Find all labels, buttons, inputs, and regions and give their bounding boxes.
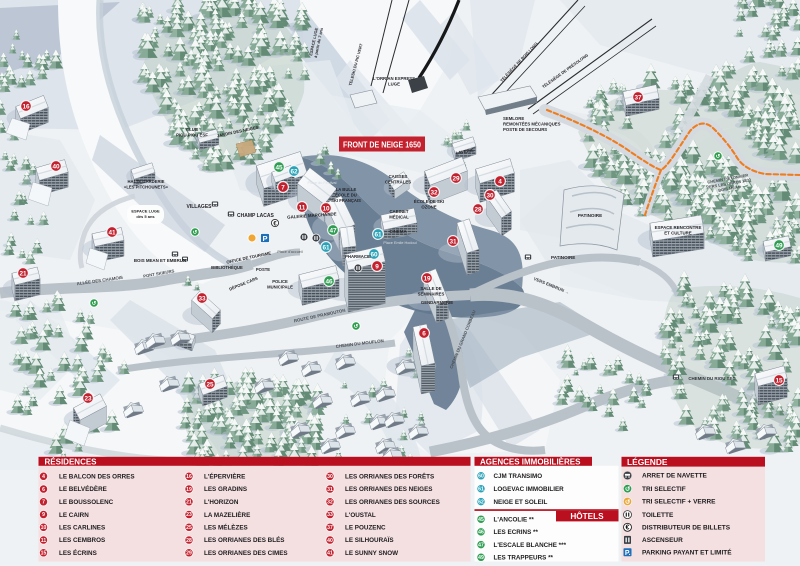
svg-text:31: 31 bbox=[327, 487, 333, 493]
svg-text:HÔTELS: HÔTELS bbox=[570, 510, 604, 521]
svg-text:40: 40 bbox=[52, 163, 60, 170]
svg-text:4: 4 bbox=[498, 178, 502, 185]
svg-text:30: 30 bbox=[327, 474, 333, 480]
svg-text:LES MÉLÈZES: LES MÉLÈZES bbox=[204, 523, 248, 532]
svg-text:LOGEVAC IMMOBILIER: LOGEVAC IMMOBILIER bbox=[494, 486, 565, 493]
svg-text:23: 23 bbox=[84, 395, 92, 402]
svg-text:LES CEMBROS: LES CEMBROS bbox=[59, 537, 105, 544]
svg-text:PARKING PAYANT ET LIMITÉ: PARKING PAYANT ET LIMITÉ bbox=[642, 547, 732, 556]
svg-text:45: 45 bbox=[478, 517, 484, 523]
svg-text:46: 46 bbox=[478, 530, 484, 536]
svg-text:6: 6 bbox=[422, 330, 426, 337]
svg-text:15: 15 bbox=[41, 551, 47, 557]
svg-text:BIBLIOTHÈQUE: BIBLIOTHÈQUE bbox=[211, 265, 243, 270]
svg-text:L'ÉPERVIÈRE: L'ÉPERVIÈRE bbox=[204, 472, 245, 481]
svg-text:11: 11 bbox=[41, 538, 47, 544]
svg-text:25: 25 bbox=[186, 525, 192, 531]
svg-text:29: 29 bbox=[452, 175, 460, 182]
svg-text:LES ECRINS **: LES ECRINS ** bbox=[494, 529, 539, 536]
svg-text:L'ANCOLIE **: L'ANCOLIE ** bbox=[494, 516, 535, 523]
svg-text:28: 28 bbox=[186, 538, 192, 544]
svg-text:16: 16 bbox=[186, 474, 192, 480]
svg-text:L'OUSTAL: L'OUSTAL bbox=[345, 512, 376, 519]
svg-text:ARRET DE NAVETTE: ARRET DE NAVETTE bbox=[642, 473, 708, 480]
svg-text:NEIGE ET SOLEIL: NEIGE ET SOLEIL bbox=[494, 499, 548, 506]
svg-text:37: 37 bbox=[327, 525, 333, 531]
svg-text:41: 41 bbox=[108, 229, 116, 236]
svg-text:GENDARMERIE: GENDARMERIE bbox=[421, 300, 453, 305]
svg-text:46: 46 bbox=[325, 278, 333, 285]
svg-text:CAISSESCENTRALES: CAISSESCENTRALES bbox=[385, 174, 411, 185]
svg-text:LE BALCON DES ORRES: LE BALCON DES ORRES bbox=[59, 474, 135, 481]
svg-text:15: 15 bbox=[775, 377, 783, 384]
svg-text:Place Emile Hodoul: Place Emile Hodoul bbox=[383, 241, 416, 245]
svg-text:LES ORRIANES DES BLÉS: LES ORRIANES DES BLÉS bbox=[204, 535, 284, 544]
svg-text:POSTE: POSTE bbox=[256, 267, 270, 272]
svg-text:PHARMACIE: PHARMACIE bbox=[345, 254, 371, 259]
svg-text:9: 9 bbox=[375, 263, 379, 270]
svg-text:19: 19 bbox=[186, 487, 192, 493]
svg-text:LES TRAPPEURS **: LES TRAPPEURS ** bbox=[494, 555, 554, 562]
svg-text:TRI SELECTIF: TRI SELECTIF bbox=[642, 486, 686, 493]
svg-text:40: 40 bbox=[327, 538, 333, 544]
svg-text:LES ORRIANES DES SOURCES: LES ORRIANES DES SOURCES bbox=[345, 499, 440, 506]
svg-text:21: 21 bbox=[19, 270, 27, 277]
svg-text:€: € bbox=[626, 525, 630, 532]
svg-text:LES GRADINS: LES GRADINS bbox=[204, 486, 247, 493]
svg-text:62: 62 bbox=[478, 499, 484, 505]
svg-text:62: 62 bbox=[290, 168, 298, 175]
svg-text:VILLAGES: VILLAGES bbox=[186, 204, 212, 210]
svg-text:LE SUNNY SNOW: LE SUNNY SNOW bbox=[345, 550, 398, 557]
svg-text:37: 37 bbox=[634, 94, 642, 101]
svg-text:47: 47 bbox=[478, 542, 484, 548]
svg-text:23: 23 bbox=[186, 512, 192, 518]
svg-text:↺: ↺ bbox=[193, 229, 198, 236]
svg-text:DISTRIBUTEUR DE BILLETS: DISTRIBUTEUR DE BILLETS bbox=[642, 525, 731, 532]
svg-text:TRI SELECTIF + VERRE: TRI SELECTIF + VERRE bbox=[642, 499, 716, 506]
svg-text:31: 31 bbox=[449, 238, 457, 245]
svg-text:CJM TRANSIMO: CJM TRANSIMO bbox=[494, 473, 543, 480]
svg-text:BOIS MEAN ET EMBRUN: BOIS MEAN ET EMBRUN bbox=[134, 258, 186, 263]
svg-text:↺: ↺ bbox=[92, 300, 97, 307]
svg-text:↺: ↺ bbox=[354, 323, 359, 330]
svg-text:Place du Festival: Place du Festival bbox=[308, 181, 337, 185]
svg-text:28: 28 bbox=[474, 206, 482, 213]
svg-text:LES ORRIANES DES CIMES: LES ORRIANES DES CIMES bbox=[204, 550, 288, 557]
svg-text:CABINETMÉDICAL: CABINETMÉDICAL bbox=[389, 209, 409, 220]
svg-text:CINÉMA: CINÉMA bbox=[389, 229, 407, 234]
svg-text:PATINOIRE: PATINOIRE bbox=[578, 213, 602, 218]
svg-text:60: 60 bbox=[370, 251, 378, 258]
svg-text:LE POUZENC: LE POUZENC bbox=[345, 525, 386, 532]
svg-text:49: 49 bbox=[775, 242, 783, 249]
svg-text:LE BOUSSOLENC: LE BOUSSOLENC bbox=[59, 499, 114, 506]
svg-text:33: 33 bbox=[327, 512, 333, 518]
svg-text:60: 60 bbox=[478, 474, 484, 480]
svg-text:21: 21 bbox=[186, 500, 192, 506]
svg-text:SALLE DESÉMINAIRES: SALLE DESÉMINAIRES bbox=[418, 286, 445, 297]
svg-text:LE SILHOURAÏS: LE SILHOURAÏS bbox=[345, 536, 394, 544]
svg-text:32: 32 bbox=[327, 500, 333, 506]
svg-text:29: 29 bbox=[186, 551, 192, 557]
svg-text:16: 16 bbox=[22, 103, 30, 110]
svg-text:AGENCES IMMOBILIÈRES: AGENCES IMMOBILIÈRES bbox=[480, 457, 581, 466]
svg-text:PATINOIRE: PATINOIRE bbox=[551, 255, 575, 260]
svg-text:LES ORRIANES DES NEIGES: LES ORRIANES DES NEIGES bbox=[345, 486, 432, 493]
svg-text:47: 47 bbox=[329, 227, 337, 234]
svg-text:CHEMIN DU RIOU SEC: CHEMIN DU RIOU SEC bbox=[688, 376, 736, 381]
svg-text:CHAMP LACAS: CHAMP LACAS bbox=[237, 213, 275, 219]
svg-text:33: 33 bbox=[198, 295, 206, 302]
svg-text:6: 6 bbox=[42, 487, 45, 493]
svg-text:TOILETTE: TOILETTE bbox=[642, 512, 674, 519]
svg-text:11: 11 bbox=[299, 204, 306, 211]
svg-text:↺: ↺ bbox=[625, 499, 630, 506]
svg-text:9: 9 bbox=[42, 512, 45, 518]
svg-text:49: 49 bbox=[478, 555, 484, 561]
svg-text:LE CAIRN: LE CAIRN bbox=[59, 512, 89, 519]
svg-text:LES ORRIANES DES FORÊTS: LES ORRIANES DES FORÊTS bbox=[345, 472, 434, 481]
svg-text:32: 32 bbox=[430, 189, 438, 196]
svg-text:P.: P. bbox=[625, 550, 631, 557]
svg-text:FRONT DE NEIGE 1650: FRONT DE NEIGE 1650 bbox=[343, 140, 421, 150]
svg-text:L'ESCALE BLANCHE ***: L'ESCALE BLANCHE *** bbox=[494, 542, 567, 549]
svg-text:4: 4 bbox=[42, 474, 45, 480]
svg-text:↺: ↺ bbox=[625, 486, 630, 493]
svg-text:10: 10 bbox=[41, 525, 47, 531]
svg-text:Place d'accueil: Place d'accueil bbox=[277, 250, 302, 254]
svg-text:7: 7 bbox=[42, 500, 45, 506]
svg-text:HALTE GARDERIE«LES PITCHOUNETS: HALTE GARDERIE«LES PITCHOUNETS» bbox=[124, 179, 169, 189]
svg-text:LÉGENDE: LÉGENDE bbox=[627, 456, 668, 467]
svg-text:ASCENSEUR: ASCENSEUR bbox=[642, 537, 683, 544]
svg-text:L'HORIZON: L'HORIZON bbox=[204, 499, 239, 506]
svg-text:↺: ↺ bbox=[716, 153, 721, 160]
svg-text:19: 19 bbox=[423, 275, 431, 282]
svg-text:61: 61 bbox=[478, 486, 484, 492]
svg-text:30: 30 bbox=[486, 192, 494, 199]
svg-text:RÉSIDENCES: RÉSIDENCES bbox=[45, 457, 98, 466]
svg-text:LE BELVÉDÈRE: LE BELVÉDÈRE bbox=[59, 484, 107, 493]
svg-text:LA MAZELIÈRE: LA MAZELIÈRE bbox=[204, 510, 250, 519]
svg-text:41: 41 bbox=[327, 551, 333, 557]
svg-text:LES CARLINES: LES CARLINES bbox=[59, 525, 105, 532]
svg-text:25: 25 bbox=[206, 381, 214, 388]
svg-text:P: P bbox=[262, 234, 267, 243]
svg-text:7: 7 bbox=[281, 184, 285, 191]
svg-text:LES ÉCRINS: LES ÉCRINS bbox=[59, 548, 97, 557]
svg-text:61: 61 bbox=[322, 244, 330, 251]
svg-text:45: 45 bbox=[275, 164, 283, 171]
svg-text:61: 61 bbox=[374, 231, 382, 238]
